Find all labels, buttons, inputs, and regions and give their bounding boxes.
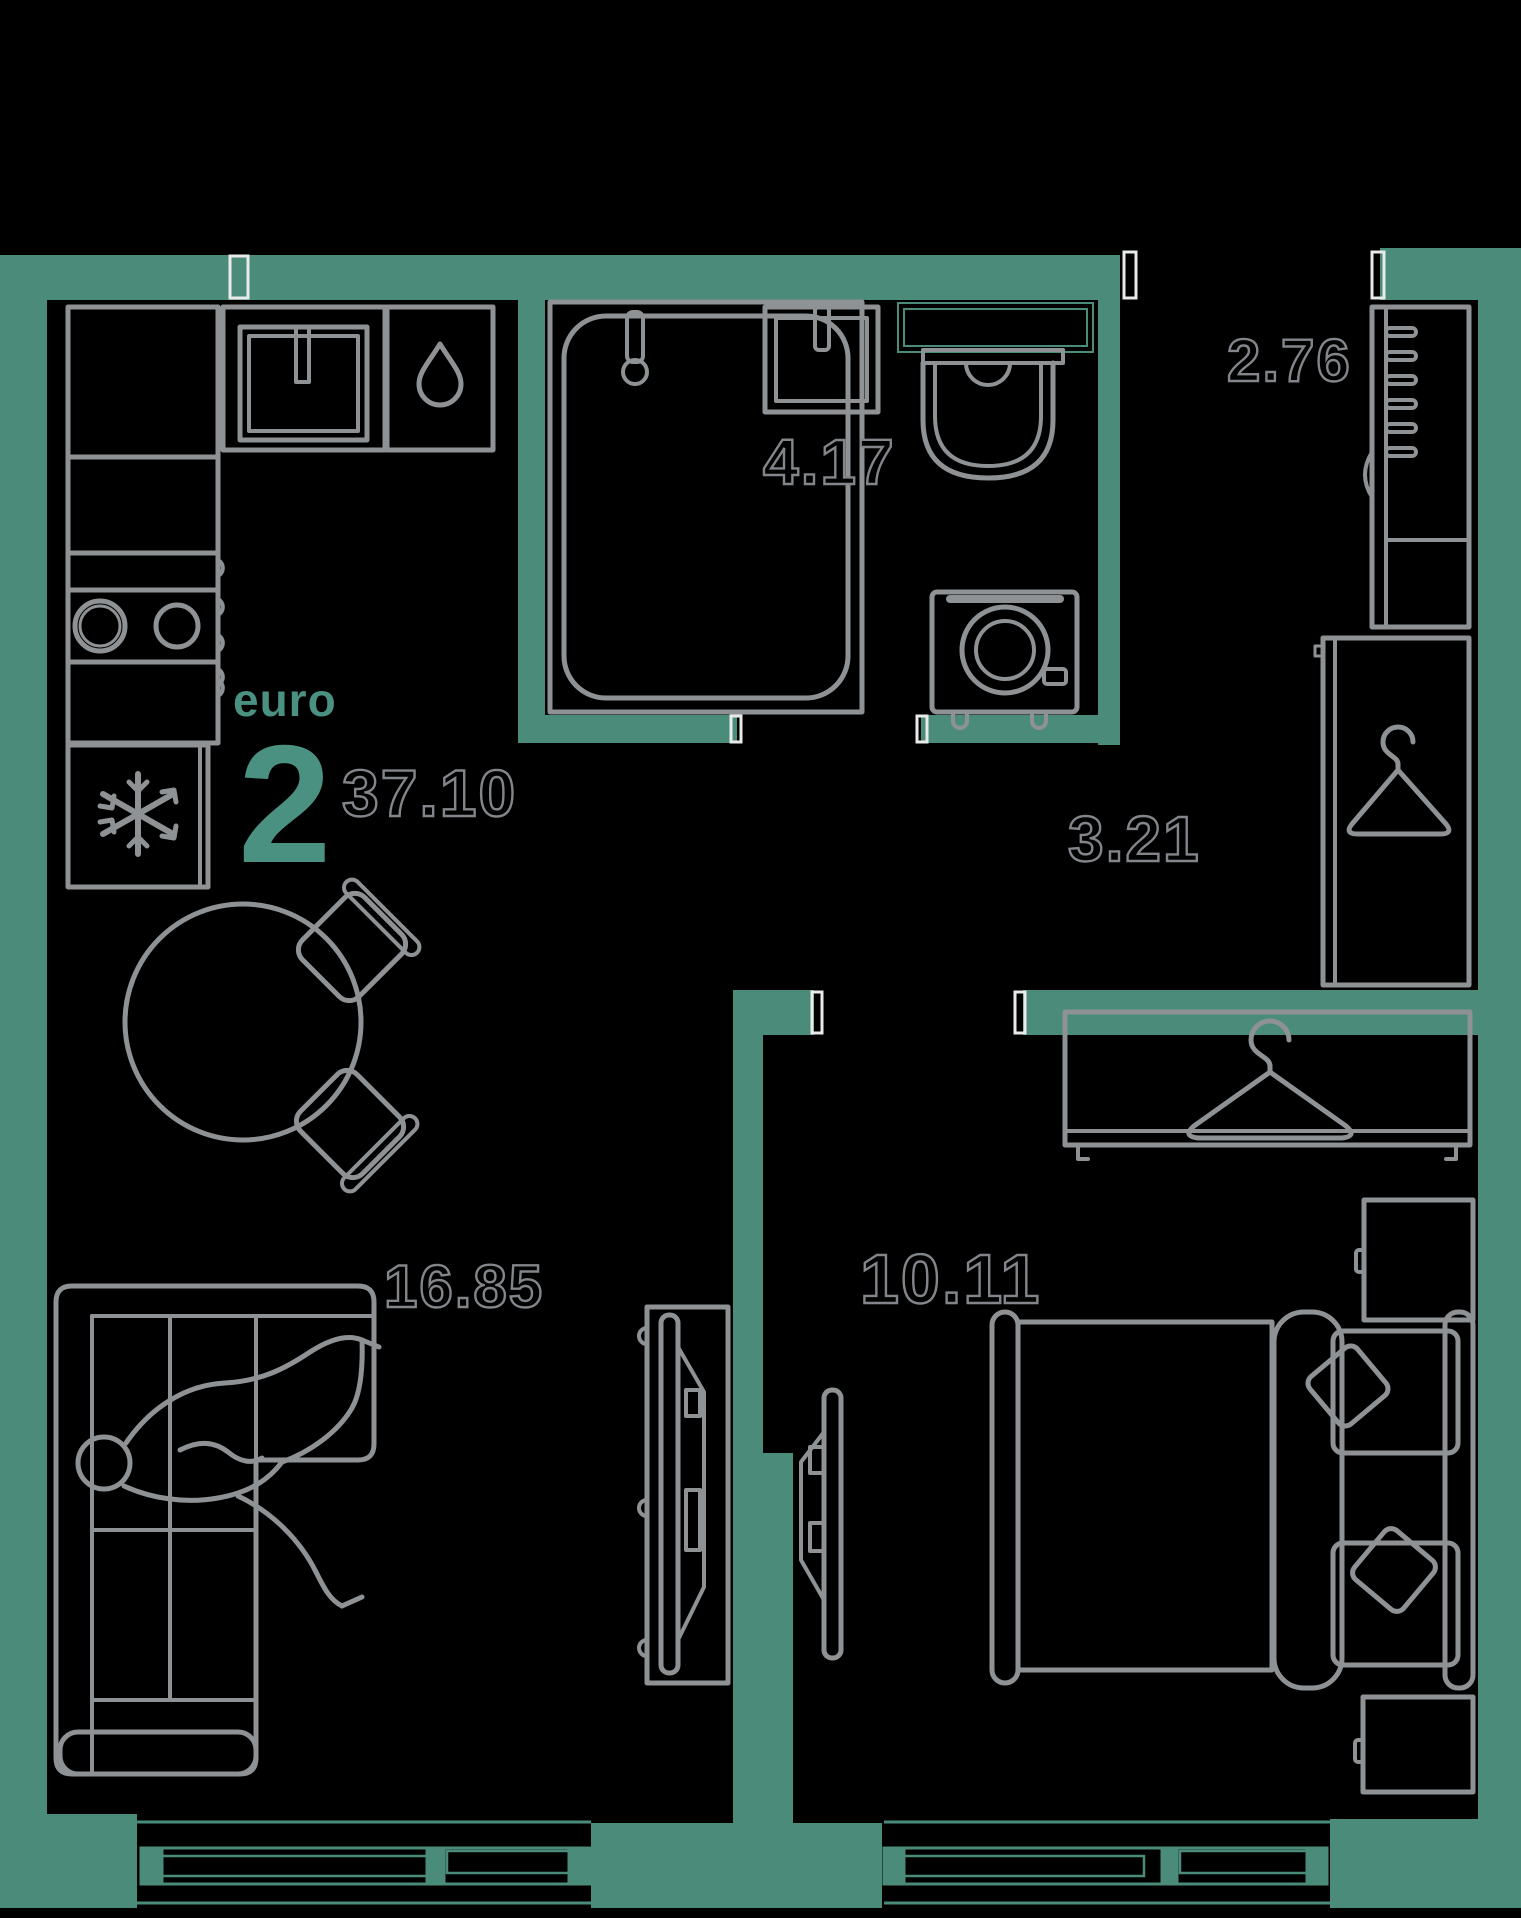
nightstand [1356, 1200, 1473, 1320]
hanger-icon [1189, 1021, 1351, 1138]
wall-bathroom-bottom-left [518, 715, 737, 743]
floorplan-drawing: euro 2 37.10 4.17 2.76 3.21 16.85 10.11 [0, 0, 1521, 1918]
stove-burners [75, 601, 198, 651]
dining-table [125, 876, 423, 1194]
room-area-kitchen-living: 16.85 [384, 1253, 544, 1320]
bed-duvet [1018, 1322, 1272, 1670]
floorplan-canvas: euro 2 37.10 4.17 2.76 3.21 16.85 10.11 [0, 0, 1521, 1918]
wall-bathroom-bottom-right [921, 715, 1120, 743]
bath-faucet [627, 312, 643, 362]
pier-bottom-middle [591, 1823, 882, 1908]
room-area-bedroom: 10.11 [860, 1240, 1041, 1318]
bedroom-window-pane-right [1180, 1851, 1307, 1873]
jamb-bedroom-door-left [812, 992, 822, 1033]
fridge [68, 745, 208, 887]
toilet [923, 350, 1063, 478]
tv-unit-bedroom [801, 1390, 841, 1658]
pier-bottom-right [1330, 1819, 1521, 1908]
door-jambs [230, 252, 1384, 1033]
wall-left [0, 300, 47, 1814]
total-area-label: 37.10 [342, 756, 517, 830]
hanger-icon [1349, 727, 1449, 834]
wall-bathroom-right-column [1098, 300, 1120, 745]
shelf-hooks [1386, 328, 1416, 456]
bedroom-window-frame [884, 1848, 1327, 1884]
corridor-wardrobe [1315, 638, 1469, 985]
wall-bedroom-top-left [733, 990, 814, 1035]
bed-pillow-small [1349, 1525, 1439, 1615]
bedroom-window-pane-left [902, 1856, 1144, 1876]
nightstand [1355, 1697, 1473, 1792]
bathtub [550, 302, 862, 712]
tv-screen [661, 1315, 678, 1673]
wall-divider-upper [733, 1035, 763, 1453]
dining-chair [284, 1058, 421, 1195]
wall-top [0, 255, 1120, 300]
snowflake-icon [100, 774, 176, 854]
water-drop-icon [419, 344, 461, 405]
bed-pillow [1333, 1543, 1458, 1665]
living-window-pane-right [447, 1851, 570, 1873]
toilet-cistern-frame [898, 303, 1093, 352]
jamb-bedroom-door-right [1015, 992, 1025, 1033]
unit-rooms-count: 2 [238, 710, 331, 898]
entry-shelf [1365, 307, 1469, 627]
pier-bottom-left [0, 1814, 137, 1908]
washing-machine [932, 592, 1077, 728]
bed-pillow [1333, 1331, 1458, 1453]
bed [992, 1312, 1473, 1688]
sofa [56, 1286, 374, 1774]
wall-right [1478, 248, 1521, 1908]
room-area-corridor: 3.21 [1068, 803, 1201, 875]
tv-screen [824, 1390, 841, 1658]
wall-bathroom-left [518, 300, 545, 743]
living-window-frame [141, 1848, 590, 1884]
walls [0, 248, 1521, 1908]
sink-faucet [815, 307, 829, 350]
bed-pillow-small [1304, 1342, 1391, 1429]
wall-divider-lower [733, 1453, 793, 1825]
jamb-entrance-left [1124, 252, 1136, 298]
room-area-bathroom: 4.17 [763, 426, 896, 498]
tv-unit-living [639, 1307, 728, 1683]
person-figure [78, 1337, 379, 1606]
labels: euro 2 37.10 4.17 2.76 3.21 16.85 10.11 [233, 327, 1352, 1320]
room-area-entry-hall: 2.76 [1227, 327, 1352, 394]
living-window-pane-left [158, 1856, 427, 1876]
